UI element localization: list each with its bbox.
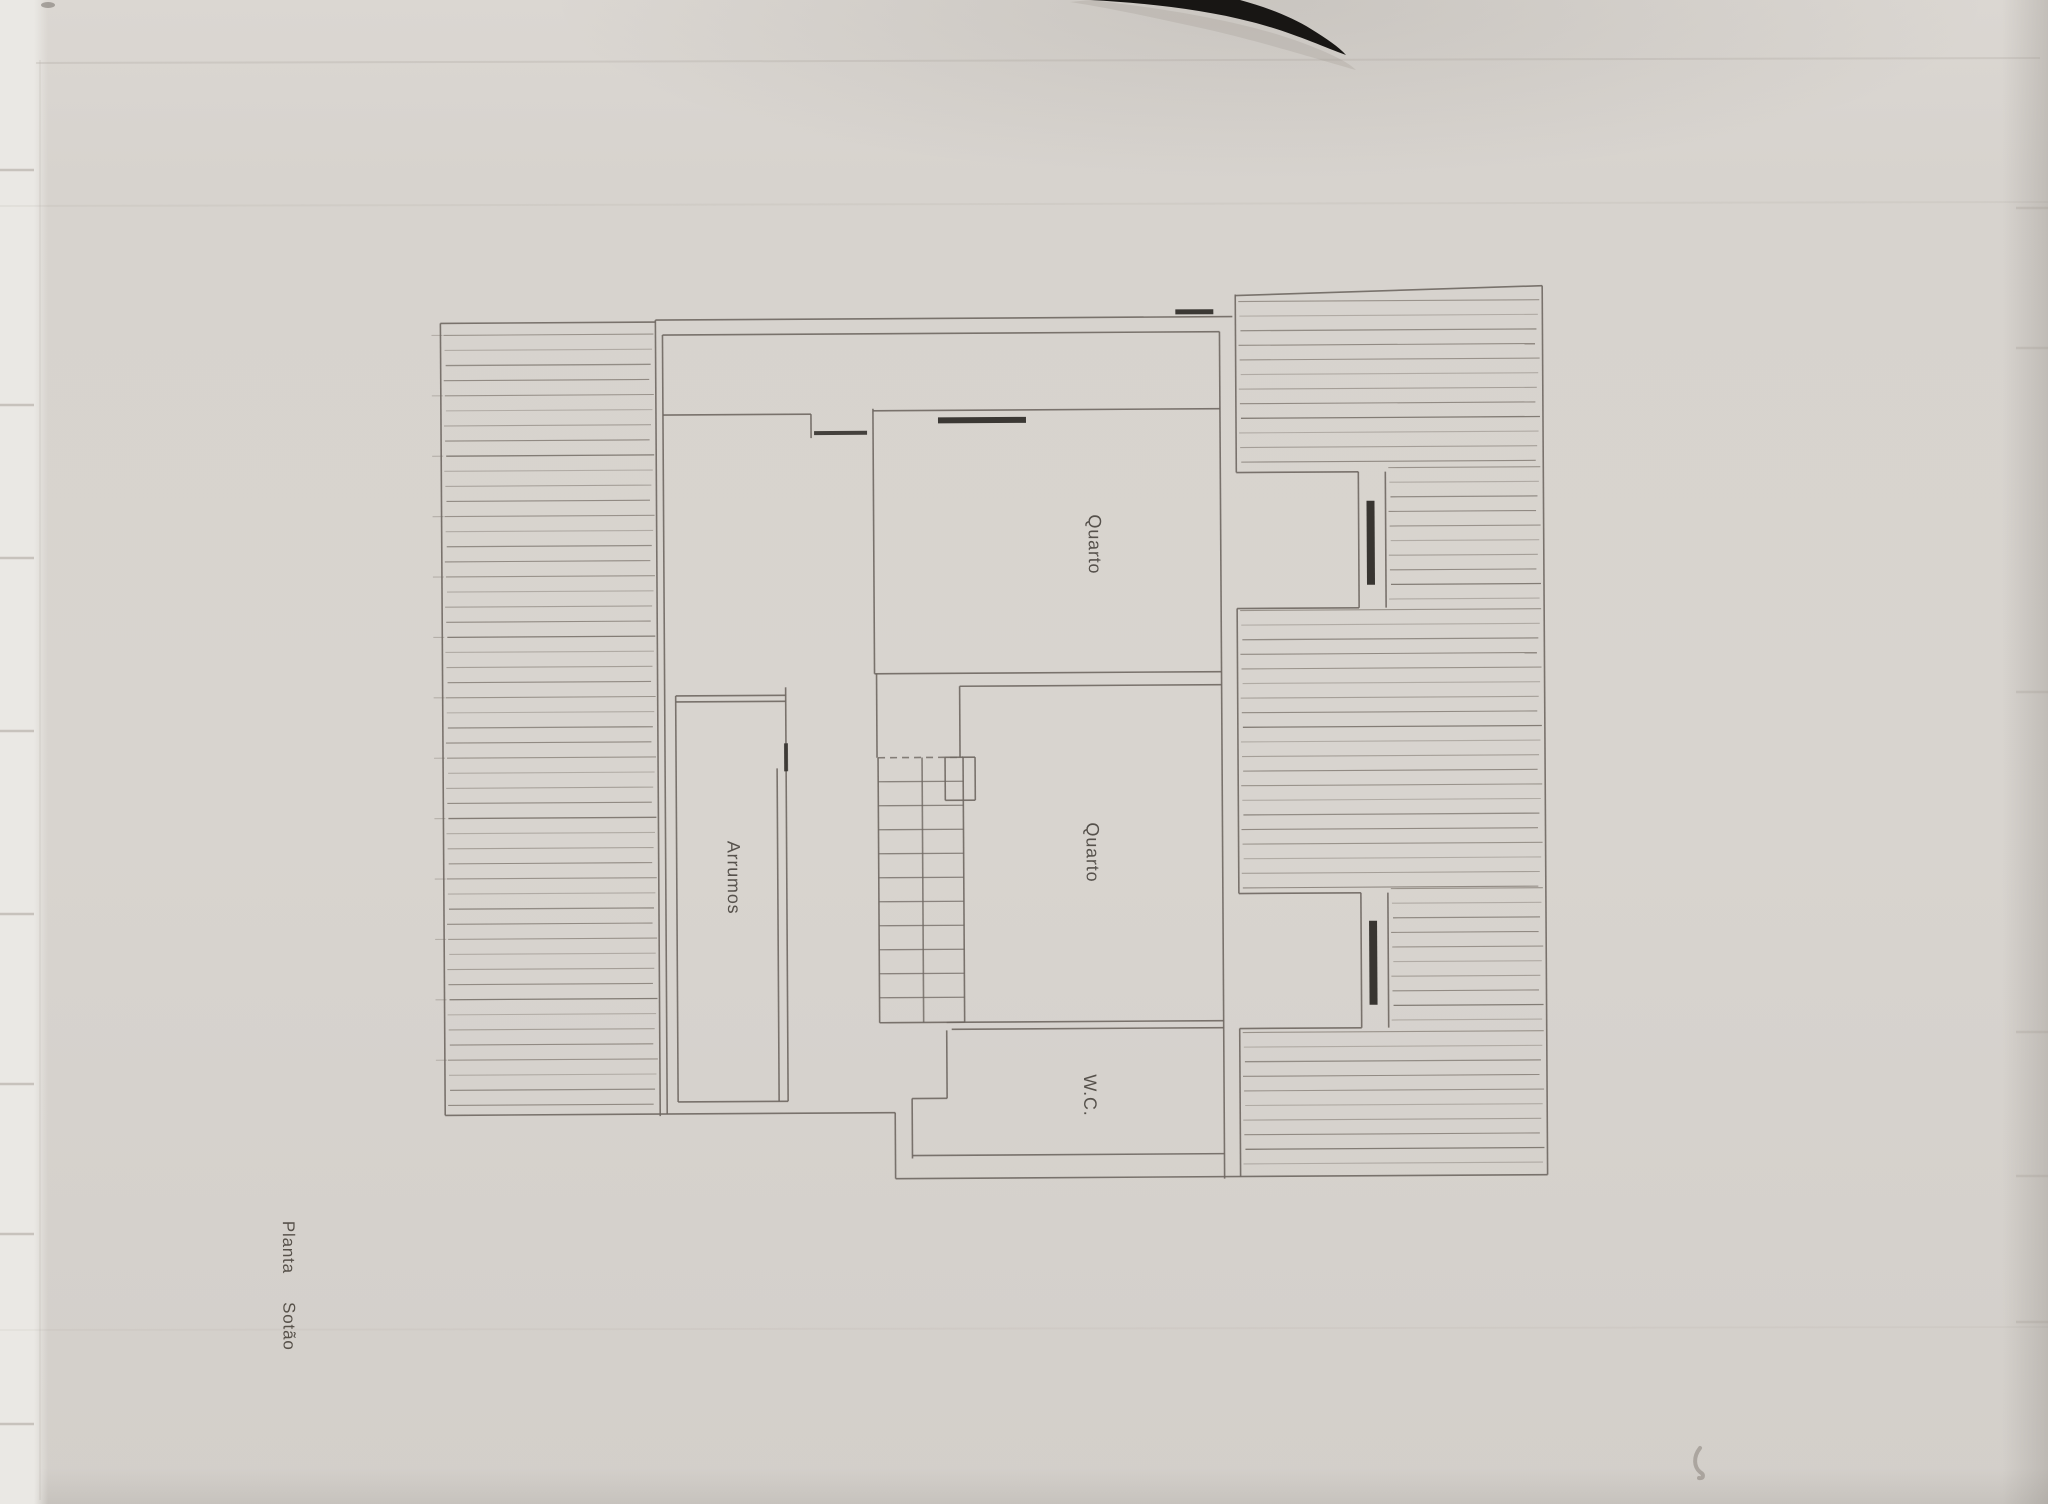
floor-plan-drawing: Quarto Quarto Arrumos W.C. Planta Sotão [0,0,2048,1504]
room-label-quarto-2: Quarto [1082,822,1102,882]
room-label-quarto-1: Quarto [1085,514,1105,574]
room-labels: Quarto Quarto Arrumos W.C. Planta Sotão [275,514,1110,1350]
staircase [878,757,977,1023]
plan-title-word-2: Sotão [279,1302,298,1351]
scan-artifact-lines [0,58,2048,1500]
room-label-arrumos: Arrumos [724,841,744,915]
pen-smudge [1695,1448,1703,1478]
scanned-page: Quarto Quarto Arrumos W.C. Planta Sotão [0,0,2048,1504]
corner-speck [41,2,55,8]
roof-hatch-areas [431,300,1544,1169]
room-label-wc: W.C. [1080,1074,1100,1116]
window-bars [783,311,1373,1009]
plan-title-word-1: Planta [279,1221,298,1274]
